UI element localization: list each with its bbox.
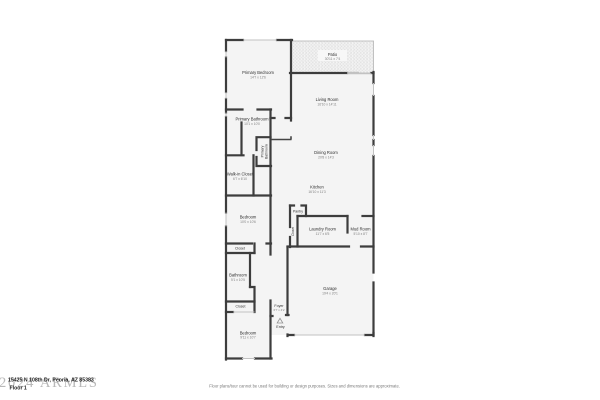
svg-text:Garage: Garage [323,286,337,291]
svg-text:6'7 x 4'2: 6'7 x 4'2 [274,308,285,312]
svg-text:Bathroom: Bathroom [265,144,269,159]
svg-text:Laundry Room: Laundry Room [309,227,336,232]
svg-text:Primary Bathroom: Primary Bathroom [236,117,270,122]
svg-text:9'11 x 10'7: 9'11 x 10'7 [240,336,256,340]
svg-text:Pantry: Pantry [293,210,303,214]
svg-text:Floor 1: Floor 1 [10,386,27,392]
svg-text:20'8 x 14'3: 20'8 x 14'3 [318,156,334,160]
svg-text:6'7 x 6'10: 6'7 x 6'10 [233,177,247,181]
svg-text:Closet: Closet [235,247,245,251]
svg-text:Bathroom: Bathroom [229,273,247,278]
svg-text:5'1 x 10'5: 5'1 x 10'5 [231,278,245,282]
svg-text:10'0 x 10'6: 10'0 x 10'6 [240,220,256,224]
svg-text:Floor plans/tour cannot be use: Floor plans/tour cannot be used for buil… [209,384,400,389]
svg-text:Dining Room: Dining Room [314,150,338,155]
svg-text:15425 N 108th Dr, Peoria, AZ 8: 15425 N 108th Dr, Peoria, AZ 85383 [8,377,94,383]
svg-text:16'10 x 11'3: 16'10 x 11'3 [308,190,325,194]
svg-text:Living Room: Living Room [316,97,339,102]
svg-text:Entry: Entry [276,325,285,329]
svg-text:Closet: Closet [236,305,246,309]
svg-text:Walk-in Closet: Walk-in Closet [227,172,254,177]
svg-text:16'10 x 14'11: 16'10 x 14'11 [317,103,336,107]
svg-text:5'10 x 8'7: 5'10 x 8'7 [354,232,368,236]
svg-text:Mud Room: Mud Room [350,227,371,232]
svg-text:Bedroom: Bedroom [240,330,257,335]
svg-text:Closet: Closet [291,227,295,236]
svg-text:30'11 x 7'4: 30'11 x 7'4 [325,57,341,61]
svg-text:Primary Bedroom: Primary Bedroom [242,70,274,75]
svg-text:14'7 x 12'6: 14'7 x 12'6 [250,76,266,80]
svg-text:19'4 x 20'1: 19'4 x 20'1 [322,292,338,296]
svg-text:11'7 x 6'5: 11'7 x 6'5 [316,232,330,236]
svg-text:10'1 x 10'0: 10'1 x 10'0 [244,122,260,126]
svg-text:Kitchen: Kitchen [310,185,324,190]
svg-text:Bedroom: Bedroom [240,215,257,220]
